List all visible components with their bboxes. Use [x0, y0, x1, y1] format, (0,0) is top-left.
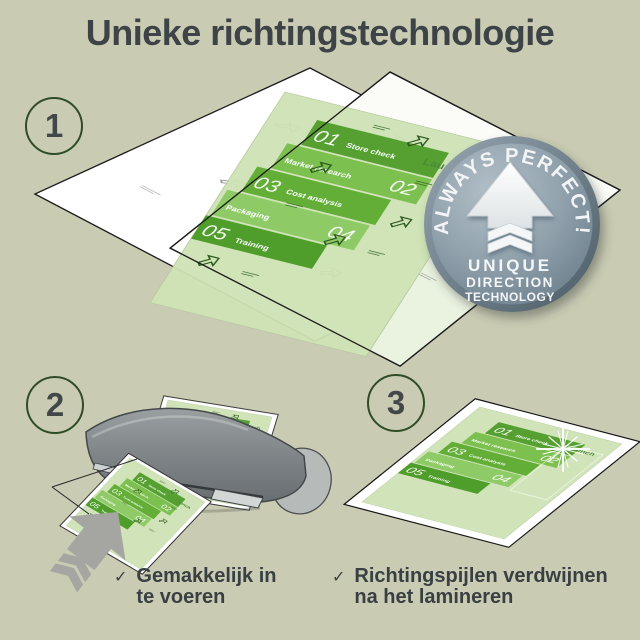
benefit-text: Gemakkelijk in te voeren — [136, 566, 276, 608]
step-number-3: 3 — [367, 374, 425, 432]
checkmark-icon: ✓ — [332, 566, 345, 608]
badge-line-technology: TECHNOLOGY — [465, 290, 555, 304]
checkmark-icon: ✓ — [114, 566, 127, 608]
illustration-scene: 01 Store check Market research 02 03 Cos… — [0, 0, 640, 640]
infographic-page: 01 Store check Market research 02 03 Cos… — [0, 0, 640, 640]
step-number-2: 2 — [26, 376, 84, 434]
benefit-easy-feeding: ✓ Gemakkelijk in te voeren — [114, 566, 324, 608]
benefit-text: Richtingspijlen verdwijnen na het lamine… — [354, 566, 607, 608]
page-title: Unieke richtingstechnologie — [0, 12, 640, 54]
benefit-arrows-disappear: ✓ Richtingspijlen verdwijnen na het lami… — [332, 566, 632, 608]
badge-line-direction: DIRECTION — [466, 275, 554, 290]
always-perfect-badge: ALWAYS PERFECT! UNIQUE DIRECTION TECHNOL… — [424, 136, 600, 312]
badge-line-unique: UNIQUE — [468, 256, 552, 275]
step-number-1: 1 — [25, 97, 83, 155]
